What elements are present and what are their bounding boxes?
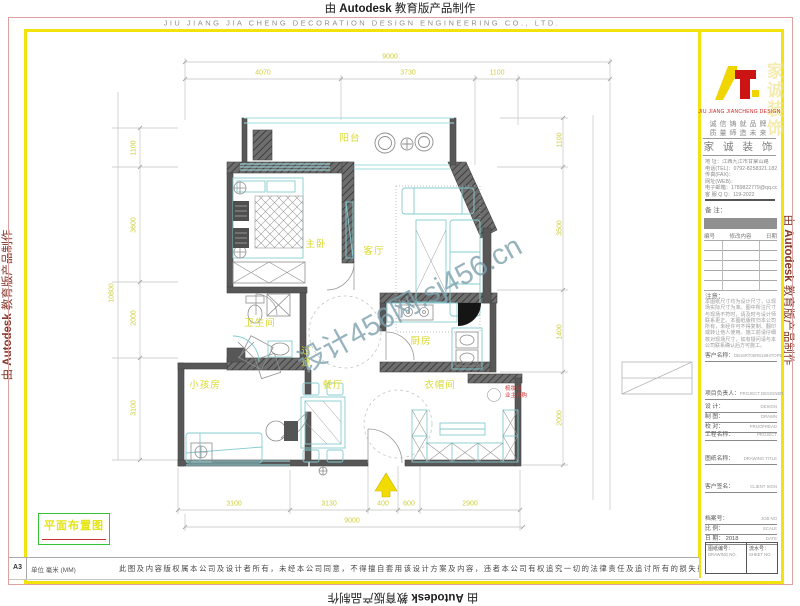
dimension-label: 3730 (400, 70, 416, 77)
sheet-number-box: 图纸编号： DRAWING NO. 流水号： SHEET NO. (705, 542, 778, 574)
contact-info: 地 址：江西九江市甘棠山路电话(TEL)：0792-8258321 182700… (705, 159, 777, 199)
dimension-label: 2000 (557, 410, 564, 426)
room-label-master-bedroom: 主卧 (305, 236, 326, 250)
titleblock-row: 客户签名：CLIENT SIGN (705, 481, 777, 493)
dimension-label: 3130 (321, 501, 337, 508)
revision-header: 日期 (759, 232, 777, 240)
dimension-label: 9000 (344, 518, 360, 525)
notice-body: 本图纸尺寸均为设计尺寸，以现场实际尺寸为准。图中所注尺寸与现场不符时，请及时与设… (705, 299, 776, 349)
contact-line: 客 服 Q Q：119-2022 (705, 192, 777, 199)
titleblock-row: 图纸名称：DRAWING TITLE (705, 453, 777, 465)
titleblock-row: 项目负责人：PROJECT DESIGNER (705, 388, 777, 400)
revision-table-grid (704, 240, 777, 291)
contact-divider (705, 199, 775, 201)
room-label-living-room: 客厅 (363, 243, 384, 257)
dimension-label: 400 (377, 501, 389, 508)
company-logo (711, 60, 763, 106)
drawing-no-cell: 图纸编号： DRAWING NO. (706, 543, 747, 573)
titleblock-row: 工程名称：PROJECT (705, 429, 777, 441)
room-label-bathroom: 卫生间 (244, 315, 276, 329)
dimension-label: 9000 (382, 54, 398, 61)
revision-row (704, 251, 777, 261)
brand-en: JIU JIANG JIANCHENG DESIGN (698, 109, 780, 115)
remark-label: 备 注： (705, 204, 726, 214)
room-label-kids-room: 小孩房 (189, 377, 221, 391)
footer-strip: A3 单位 毫米 (MM) 此图及内容版权属本公司及设计者所有，未经本公司同意，… (9, 557, 699, 580)
dimension-label: 2900 (462, 501, 478, 508)
plan-title: 平面布置图 (39, 514, 109, 538)
dimension-label: 2000 (131, 310, 138, 326)
dimension-label: 3500 (557, 220, 564, 236)
dimension-label: 600 (403, 501, 415, 508)
copyright-disclaimer: 此图及内容版权属本公司及设计者所有，未经本公司同意，不得擅自套用该设计方案及内容… (119, 564, 699, 574)
room-label-dining-room: 餐厅 (322, 377, 343, 391)
revision-row (704, 271, 777, 281)
dimension-label: 1100 (557, 132, 564, 147)
revision-header: 编号 (704, 232, 722, 240)
dimension-label: 3100 (226, 501, 242, 508)
slogan-line-2: 质量缔造未来 (710, 128, 770, 138)
dimension-label: 1400 (557, 324, 564, 340)
dimension-label: 1100 (131, 140, 138, 155)
contact-line: 传真(FAX)： (705, 172, 777, 179)
dresser-note: 梳妆台业主自购 (505, 386, 527, 400)
sheet-size: A3 (9, 558, 27, 579)
revision-table-headers: 编号修改内容日期 (704, 232, 777, 240)
title-block: 家诚装饰 JIU JIANG JIANCHENG DESIGN 诚信铸就品牌 质… (701, 32, 778, 578)
revision-header: 修改内容 (722, 232, 759, 240)
revision-row (704, 241, 777, 251)
plan-title-underline (42, 539, 106, 540)
dimension-label: 1100 (489, 70, 504, 77)
revision-col-line (722, 241, 723, 291)
revision-row (704, 261, 777, 271)
dimension-label: 4070 (255, 70, 271, 77)
client-name-row: 客户名称： DB16RT05RB1984TOPE (705, 350, 777, 362)
plan-title-box: 平面布置图 (38, 513, 110, 545)
sheet-no-cell: 流水号： SHEET NO. (747, 543, 777, 573)
contact-line: 电子邮箱：1789822779@qq.com (705, 185, 777, 192)
drawing-sheet: 由 Autodesk 教育版产品制作 由 Autodesk 教育版产品制作 由 … (0, 0, 800, 606)
units-label: 单位 毫米 (MM) (27, 564, 119, 574)
room-label-cloakroom: 衣帽间 (424, 377, 456, 391)
dimension-label: 3100 (131, 400, 138, 416)
contact-line: 地 址：江西九江市甘棠山路 (705, 159, 777, 166)
room-label-balcony: 阳台 (339, 130, 360, 144)
revision-table-header-bar (704, 218, 777, 229)
dimension-label: 3600 (131, 217, 138, 233)
revision-col-line (759, 241, 760, 291)
room-label-kitchen: 厨房 (410, 333, 431, 347)
dimension-label: 10800 (109, 283, 116, 302)
company-banner: 家 诚 装 饰 (703, 138, 776, 156)
